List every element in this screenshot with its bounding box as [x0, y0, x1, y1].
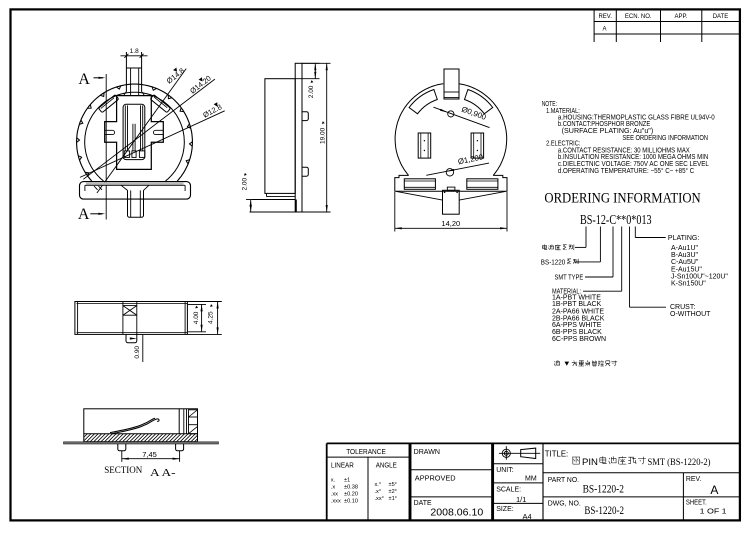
svg-text:±0.10: ±0.10 [344, 498, 358, 504]
svg-text:UNIT:: UNIT: [496, 467, 514, 474]
svg-text:REV.: REV. [686, 474, 702, 483]
svg-text:ORDERING INFORMATION: ORDERING INFORMATION [544, 191, 700, 207]
svg-text:4.00: 4.00 [193, 311, 200, 324]
svg-text:K-Sn150U": K-Sn150U" [671, 281, 706, 288]
svg-text:ANGLE: ANGLE [376, 462, 397, 469]
svg-text:x.: x. [331, 477, 336, 483]
svg-text:SECTION: SECTION [104, 466, 142, 476]
svg-text:B-Au3U": B-Au3U" [671, 252, 699, 259]
svg-text:MM: MM [525, 476, 537, 483]
svg-text:SIZE:: SIZE: [496, 506, 514, 513]
svg-text:x.°: x.° [375, 482, 382, 488]
svg-text:CRUST:: CRUST: [670, 304, 695, 311]
svg-text:A: A [78, 71, 90, 88]
svg-text:A: A [602, 27, 606, 33]
svg-text:BS-12-C**0*013: BS-12-C**0*013 [580, 212, 652, 227]
svg-text:A: A [710, 483, 718, 497]
svg-text:SEE ORDERING INFORMATION: SEE ORDERING INFORMATION [622, 135, 708, 142]
svg-text:±1°: ±1° [389, 496, 397, 502]
svg-text:1B-PBT BLACK: 1B-PBT BLACK [552, 301, 602, 308]
svg-text:APPROVED: APPROVED [415, 474, 456, 483]
svg-text:SHEET.: SHEET. [686, 498, 707, 507]
svg-text:SMT (BS-1220-2): SMT (BS-1220-2) [648, 457, 711, 467]
svg-text:0.90: 0.90 [134, 346, 141, 359]
svg-text:6C-PPS BROWN: 6C-PPS BROWN [552, 336, 606, 343]
svg-text:REV.: REV. [598, 14, 612, 20]
svg-text:TOLERANCE: TOLERANCE [346, 449, 386, 456]
svg-text:SCALE:: SCALE: [496, 486, 521, 493]
svg-text:1/1: 1/1 [516, 495, 526, 504]
svg-text:c.DIELECTNIC VOLTAGE: 750V AC: c.DIELECTNIC VOLTAGE: 750V AC ONE SEC LE… [558, 161, 709, 168]
svg-text:APP.: APP. [675, 14, 688, 20]
svg-text:A4: A4 [523, 512, 532, 521]
svg-text:7,45: 7,45 [142, 450, 157, 459]
svg-text:b.CONTACT:PHOSPHOR BRONZE: b.CONTACT:PHOSPHOR BRONZE [558, 121, 651, 128]
svg-text:4.25: 4.25 [208, 311, 215, 324]
svg-text:d.OPERATING TEMPERATURE: −55°: d.OPERATING TEMPERATURE: −55° C~ +85° C [558, 167, 694, 175]
svg-text:14,20: 14,20 [441, 219, 460, 228]
svg-text:2A-PA66 WHITE: 2A-PA66 WHITE [552, 308, 604, 315]
svg-text:C-Au5U": C-Au5U" [671, 259, 699, 266]
svg-text:.x: .x [331, 485, 336, 491]
svg-text:±5°: ±5° [389, 482, 397, 488]
svg-text:LINEAR: LINEAR [331, 462, 354, 469]
svg-text:DRAWN: DRAWN [414, 447, 440, 456]
svg-text:J-Sn100U"~120U": J-Sn100U"~120U" [671, 273, 728, 280]
svg-text:BS-1220: BS-1220 [541, 260, 566, 267]
svg-text:1 OF 1: 1 OF 1 [700, 507, 727, 516]
svg-text:O-WITHOUT: O-WITHOUT [670, 311, 711, 318]
svg-text:.xx°: .xx° [375, 496, 384, 502]
svg-text:±0.38: ±0.38 [344, 485, 358, 491]
svg-text:PLATING:: PLATING: [668, 235, 699, 242]
svg-text:ECN. NO.: ECN. NO. [625, 14, 652, 20]
svg-text:.xx: .xx [331, 491, 338, 497]
svg-text:±1: ±1 [344, 477, 350, 483]
svg-text:2.00: 2.00 [241, 177, 248, 190]
svg-text:A: A [78, 206, 90, 223]
svg-text:±2°: ±2° [389, 489, 397, 495]
svg-text:BS-1220-2: BS-1220-2 [584, 503, 624, 517]
svg-text:BS-1220-2: BS-1220-2 [583, 481, 624, 495]
svg-text:2.00: 2.00 [308, 85, 315, 98]
svg-text:2008.06.10: 2008.06.10 [430, 506, 483, 518]
svg-text:PIN: PIN [582, 457, 598, 467]
svg-text:.x°: .x° [375, 489, 382, 495]
svg-text:DATE: DATE [414, 498, 432, 507]
svg-text:E-Au15U": E-Au15U" [671, 266, 702, 273]
svg-text:PART NO.: PART NO. [548, 475, 579, 484]
svg-text:TITLE:: TITLE: [545, 449, 568, 459]
svg-text:A-Au1U": A-Au1U" [671, 245, 699, 252]
svg-text:1.8: 1.8 [130, 48, 139, 55]
svg-text:A A-: A A- [150, 467, 176, 479]
svg-text:SMT TYPE: SMT TYPE [555, 275, 584, 282]
svg-text:.xxx: .xxx [331, 498, 341, 504]
svg-text:19.00: 19.00 [319, 127, 326, 144]
svg-text:DATE: DATE [713, 14, 729, 20]
svg-text:DWG, NO.: DWG, NO. [548, 499, 581, 508]
svg-text:±0.20: ±0.20 [344, 491, 358, 497]
